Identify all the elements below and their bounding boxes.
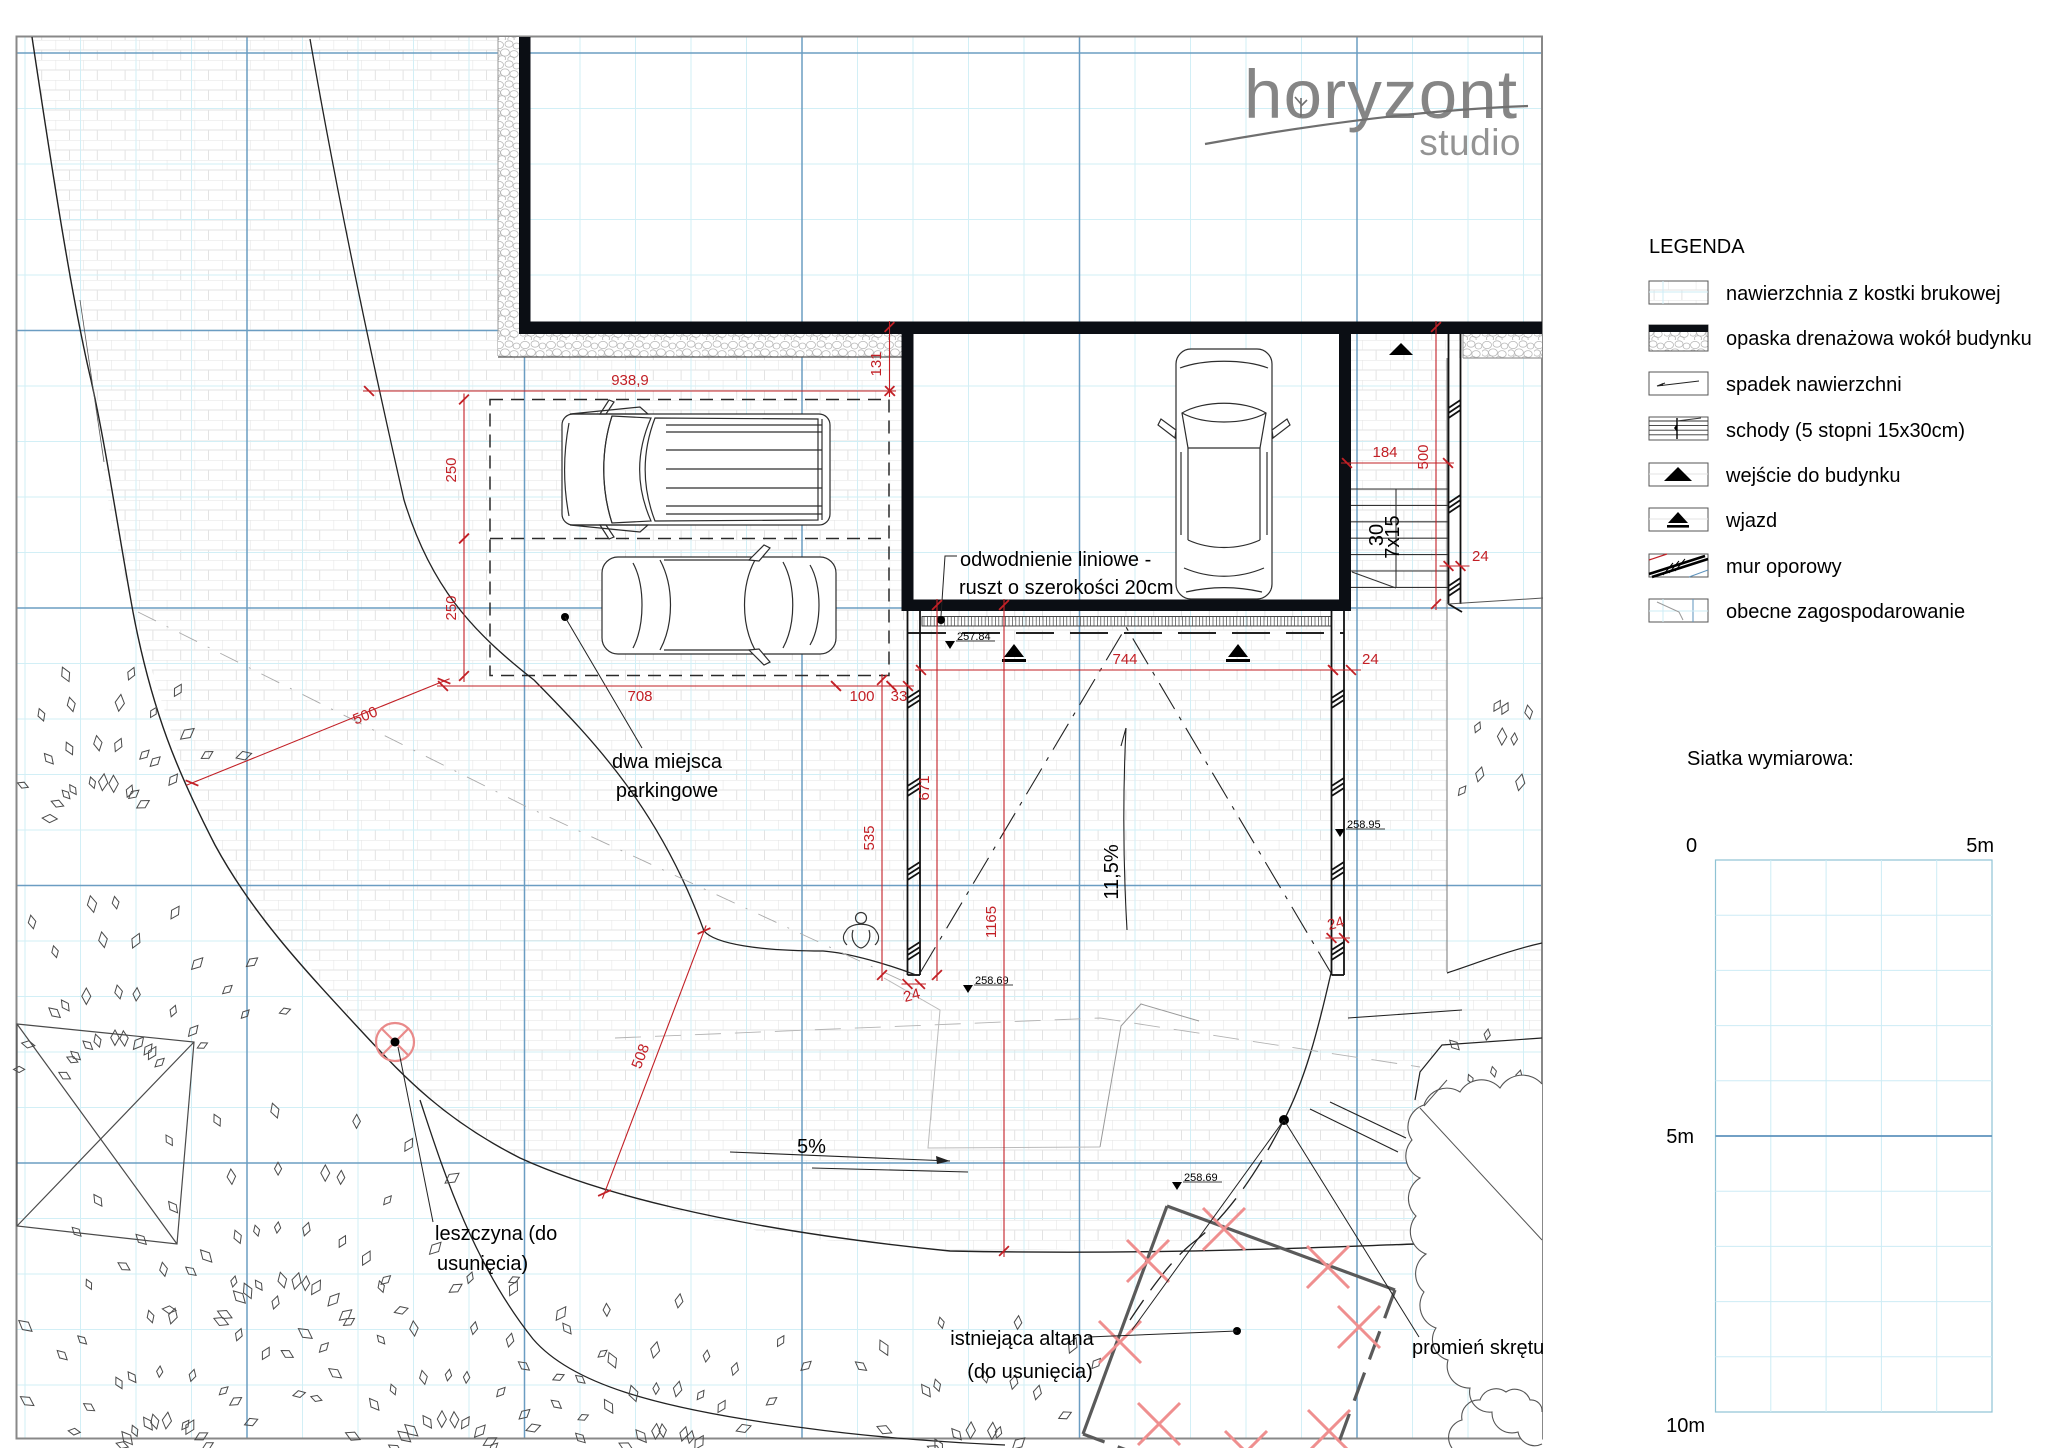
svg-text:dwa miejsca: dwa miejsca <box>612 751 723 773</box>
svg-text:30: 30 <box>1366 524 1388 546</box>
svg-text:250: 250 <box>443 457 460 482</box>
svg-text:938,9: 938,9 <box>611 372 649 389</box>
svg-text:24: 24 <box>1472 548 1489 565</box>
svg-text:1165: 1165 <box>983 906 1000 938</box>
svg-text:wjazd: wjazd <box>1725 510 1777 532</box>
svg-text:10m: 10m <box>1666 1415 1705 1437</box>
svg-text:istniejąca altana: istniejąca altana <box>950 1328 1094 1350</box>
svg-text:(do usunięcia): (do usunięcia) <box>967 1361 1093 1383</box>
svg-text:24: 24 <box>1362 651 1379 668</box>
svg-text:parkingowe: parkingowe <box>616 780 718 802</box>
svg-text:wejście do budynku: wejście do budynku <box>1725 465 1901 487</box>
svg-text:250: 250 <box>443 595 460 620</box>
svg-text:leszczyna (do: leszczyna (do <box>435 1223 557 1245</box>
svg-text:500: 500 <box>1415 444 1432 469</box>
svg-text:100: 100 <box>849 688 874 705</box>
svg-text:744: 744 <box>1112 651 1137 668</box>
svg-text:708: 708 <box>627 688 652 705</box>
svg-text:5m: 5m <box>1966 835 1994 857</box>
svg-text:0: 0 <box>1686 835 1697 857</box>
svg-text:schody (5 stopni 15x30cm): schody (5 stopni 15x30cm) <box>1726 420 1965 442</box>
svg-text:5m: 5m <box>1666 1126 1694 1148</box>
svg-text:ruszt o szerokości 20cm: ruszt o szerokości 20cm <box>959 577 1174 599</box>
svg-text:5%: 5% <box>797 1136 826 1158</box>
svg-text:535: 535 <box>861 825 878 850</box>
svg-text:Siatka wymiarowa:: Siatka wymiarowa: <box>1687 748 1854 770</box>
svg-text:promień skrętu: promień skrętu <box>1412 1337 1544 1359</box>
svg-text:spadek nawierzchni: spadek nawierzchni <box>1726 374 1902 396</box>
svg-text:obecne zagospodarowanie: obecne zagospodarowanie <box>1726 601 1965 623</box>
svg-text:671: 671 <box>916 775 933 800</box>
svg-text:184: 184 <box>1372 444 1397 461</box>
svg-text:11,5%: 11,5% <box>1101 844 1123 899</box>
svg-text:33: 33 <box>891 688 908 705</box>
svg-text:mur oporowy: mur oporowy <box>1726 556 1842 578</box>
svg-text:odwodnienie liniowe -: odwodnienie liniowe - <box>960 549 1151 571</box>
svg-text:opaska drenażowa wokół budynku: opaska drenażowa wokół budynku <box>1726 328 2032 350</box>
svg-text:nawierzchnia z kostki brukowej: nawierzchnia z kostki brukowej <box>1726 283 2001 305</box>
svg-text:usunięcia): usunięcia) <box>437 1253 528 1275</box>
svg-text:LEGENDA: LEGENDA <box>1649 236 1745 258</box>
svg-text:studio: studio <box>1419 122 1521 163</box>
svg-text:131: 131 <box>868 351 885 376</box>
